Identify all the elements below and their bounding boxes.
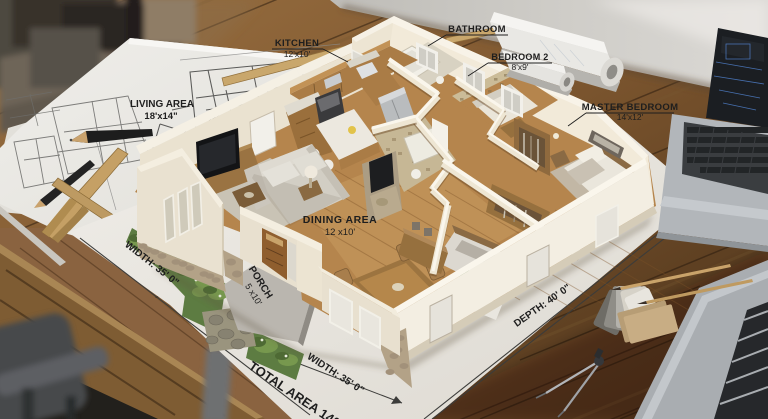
svg-text:12 x10': 12 x10': [325, 227, 356, 238]
svg-text:8'x9': 8'x9': [512, 62, 529, 72]
svg-text:BATHROOM: BATHROOM: [448, 24, 506, 35]
svg-text:12'x10': 12'x10': [284, 49, 311, 59]
svg-text:18'x14": 18'x14": [144, 111, 177, 122]
svg-text:LIVING AREA: LIVING AREA: [130, 99, 194, 110]
svg-text:KITCHEN: KITCHEN: [275, 38, 319, 49]
svg-text:14'x12': 14'x12': [617, 112, 644, 122]
svg-text:DINING AREA: DINING AREA: [303, 214, 378, 226]
svg-text:BEDROOM 2: BEDROOM 2: [491, 52, 548, 62]
